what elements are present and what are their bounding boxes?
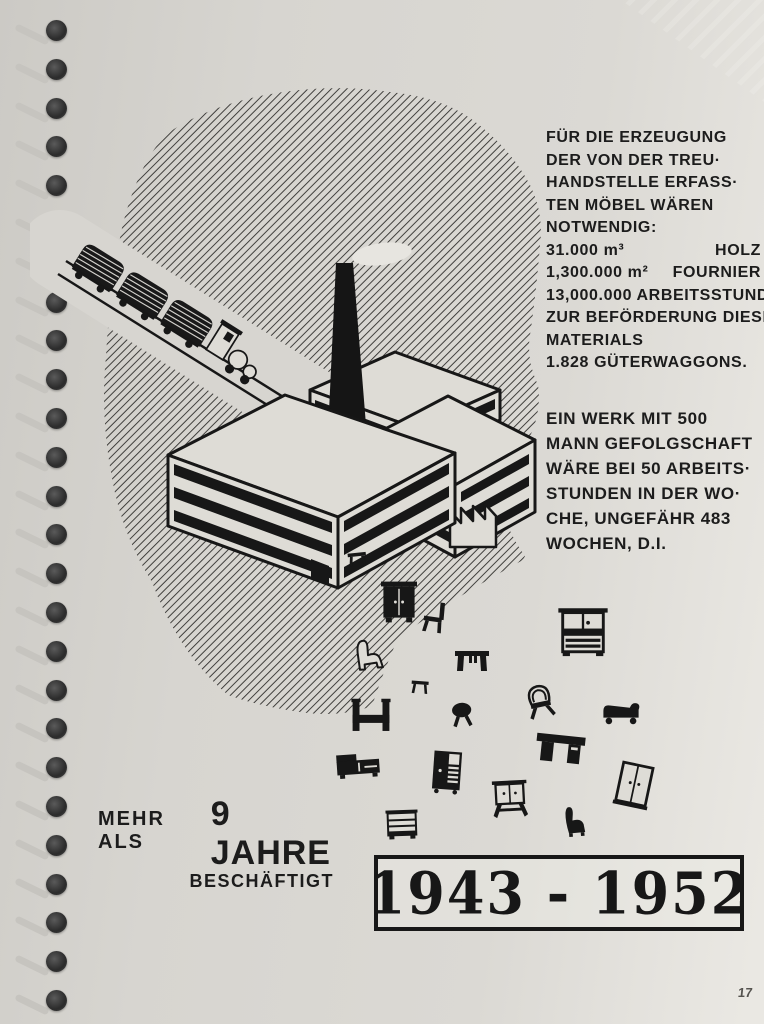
cabinet-icon bbox=[422, 746, 471, 795]
caption-employment: MEHR ALS 9 JAHRE BESCHÄFTIGT bbox=[98, 795, 340, 892]
text-block-materials: FÜR DIE ERZEUGUNGDER VON DER TREU·HANDST… bbox=[546, 127, 761, 375]
text-line: WOCHEN, D.I. bbox=[546, 531, 761, 556]
text-line: 13,000.000 ARBEITSSTUNDEN bbox=[546, 285, 761, 308]
text-line: WÄRE BEI 50 ARBEITS· bbox=[546, 456, 761, 481]
text-line: DER VON DER TREU· bbox=[546, 150, 761, 173]
scanned-catalog-page: FÜR DIE ERZEUGUNGDER VON DER TREU·HANDST… bbox=[0, 0, 764, 1024]
armchair-icon bbox=[350, 634, 393, 677]
text-line: ZUR BEFÖRDERUNG DIESES bbox=[546, 307, 761, 330]
caption-prefix: MEHR ALS bbox=[98, 808, 201, 854]
text-block-workforce: EIN WERK MIT 500MANN GEFOLGSCHAFTWÄRE BE… bbox=[546, 406, 761, 556]
year-range: 1943 - 1952 bbox=[368, 858, 751, 927]
stool-icon bbox=[406, 671, 434, 699]
wicker-chair-icon bbox=[516, 677, 563, 724]
text-line: MATERIALS bbox=[546, 330, 761, 353]
materials-intro: FÜR DIE ERZEUGUNGDER VON DER TREU·HANDST… bbox=[546, 127, 761, 240]
chair-icon bbox=[414, 597, 455, 638]
text-line: STUNDEN IN DER WO· bbox=[546, 481, 761, 506]
commode-icon bbox=[381, 805, 422, 846]
figure-value: 31.000 m³ bbox=[546, 240, 624, 263]
text-line: CHE, UNGEFÄHR 483 bbox=[546, 506, 761, 531]
text-line: EIN WERK MIT 500 bbox=[546, 406, 761, 431]
round-stool-icon bbox=[445, 697, 480, 732]
washstand-icon bbox=[486, 775, 534, 823]
materials-detail: 13,000.000 ARBEITSSTUNDENZUR BEFÖRDERUNG… bbox=[546, 285, 761, 375]
text-line: 1.828 GÜTERWAGGONS. bbox=[546, 352, 761, 375]
workforce-lines: EIN WERK MIT 500MANN GEFOLGSCHAFTWÄRE BE… bbox=[546, 406, 761, 556]
figure-row: 1,300.000 m² FOURNIER bbox=[546, 262, 761, 285]
figure-label: HOLZ bbox=[715, 240, 761, 263]
text-line: MANN GEFOLGSCHAFT bbox=[546, 431, 761, 456]
figure-label: FOURNIER bbox=[673, 262, 761, 285]
text-line: HANDSTELLE ERFASS· bbox=[546, 172, 761, 195]
caption-row: MEHR ALS 9 JAHRE bbox=[98, 795, 340, 873]
caption-years: 9 JAHRE bbox=[211, 795, 340, 873]
desk-icon bbox=[530, 720, 589, 779]
text-line: FÜR DIE ERZEUGUNG bbox=[546, 127, 761, 150]
figure-value: 1,300.000 m² bbox=[546, 262, 648, 285]
stool-icon bbox=[342, 542, 373, 573]
bed-icon bbox=[348, 693, 394, 739]
text-line: TEN MÖBEL WÄREN bbox=[546, 195, 761, 218]
chaise-icon bbox=[599, 689, 643, 733]
sideboard-icon bbox=[331, 737, 384, 790]
table-icon bbox=[452, 640, 492, 680]
caption-suffix: BESCHÄFTIGT bbox=[98, 871, 340, 892]
year-range-box: 1943 - 1952 bbox=[374, 855, 744, 931]
text-line: NOTWENDIG: bbox=[546, 217, 761, 240]
armchair-icon bbox=[557, 801, 596, 840]
dresser-icon bbox=[554, 601, 612, 659]
figure-row: 31.000 m³ HOLZ bbox=[546, 240, 761, 263]
wardrobe-icon bbox=[604, 756, 663, 815]
page-number: 17 bbox=[737, 985, 753, 1000]
